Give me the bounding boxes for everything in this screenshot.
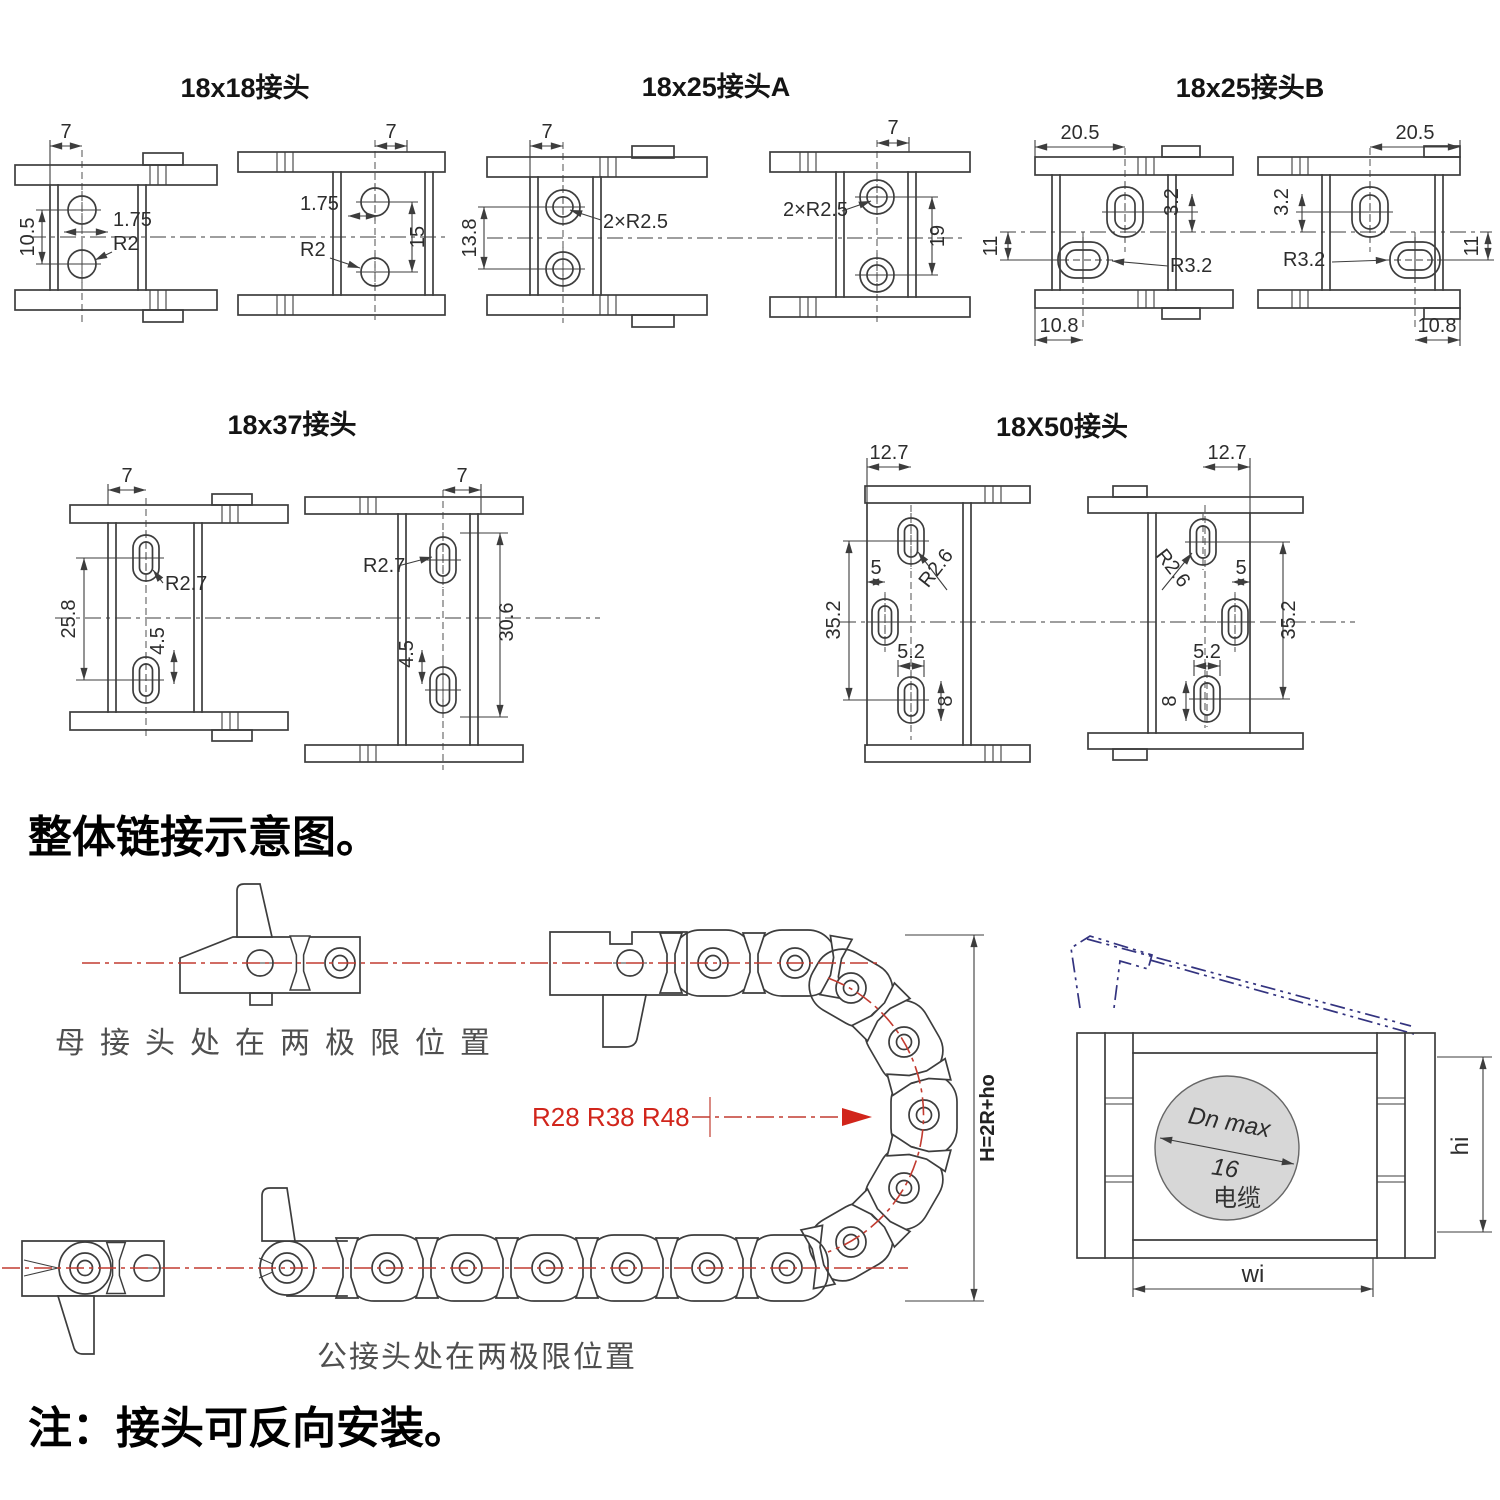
dim-width-7: 7 bbox=[877, 117, 909, 152]
inner-width-label: wi bbox=[1241, 1261, 1265, 1288]
chain-top-run bbox=[550, 930, 852, 1047]
inner-width-dimension: wi bbox=[1133, 1258, 1373, 1297]
view-left: 7 25.8 R2.7 4.5 bbox=[58, 465, 288, 741]
cable-diameter-value: 16 bbox=[1210, 1153, 1241, 1184]
dim-label: 5 bbox=[1235, 557, 1246, 579]
dim-radius-2xR2.5: 2×R2.5 bbox=[570, 210, 668, 233]
dim-radius-R2.7: R2.7 bbox=[363, 555, 432, 577]
dim-offset-11: 11 bbox=[1437, 232, 1494, 260]
dim-label: 7 bbox=[385, 121, 396, 143]
dim-width-7: 7 bbox=[443, 465, 481, 514]
dim-offset-11: 11 bbox=[980, 232, 1062, 260]
view-left: 20.5 3.2 11 R3.2 10.8 bbox=[980, 122, 1233, 346]
dim-label: R3.2 bbox=[1283, 249, 1325, 271]
dim-label: 10.8 bbox=[1418, 315, 1457, 337]
mount-slot bbox=[1189, 671, 1225, 727]
dim-pitch-19: 19 bbox=[893, 197, 949, 275]
mount-hole bbox=[63, 191, 101, 229]
dim-pitch-25.8: 25.8 bbox=[58, 558, 128, 680]
inner-height-dimension: hi bbox=[1437, 1057, 1492, 1232]
dim-label: 5.2 bbox=[1193, 641, 1221, 663]
dim-label: 10.8 bbox=[1040, 315, 1079, 337]
mount-slot bbox=[1102, 182, 1148, 242]
view-right: 12.7 R2.6 5 35.2 5.2 8 bbox=[1088, 442, 1303, 760]
panel-18x25-a: 18x25接头A 7 13.8 2× bbox=[459, 72, 970, 327]
dim-label: R3.2 bbox=[1170, 255, 1212, 277]
dim-radius-R2: R2 bbox=[300, 239, 360, 268]
dim-label: 7 bbox=[541, 121, 552, 143]
technical-drawing: 18x18接头 7 10.5 1.7 bbox=[0, 0, 1500, 1500]
view-right: 7 1.75 R2 15 bbox=[238, 121, 445, 320]
view-left: 12.7 35.2 5 R2.6 5.2 8 bbox=[823, 442, 1030, 762]
dim-label: R2.7 bbox=[165, 573, 207, 595]
dim-label: 35.2 bbox=[823, 601, 845, 640]
panel-18x25-b: 18x25接头B 20.5 3.2 bbox=[980, 73, 1494, 346]
view-right: 20.5 3.2 11 R3.2 10.8 bbox=[1258, 122, 1494, 346]
panel-18x37: 18x37接头 7 25.8 R2. bbox=[55, 410, 600, 770]
dim-label: 12.7 bbox=[870, 442, 909, 464]
dim-offset-10.8: 10.8 bbox=[1035, 308, 1083, 346]
dim-label: 1.75 bbox=[113, 209, 152, 231]
panel-title: 18x18接头 bbox=[180, 73, 309, 103]
dim-label: 7 bbox=[456, 465, 467, 487]
dim-label: 8 bbox=[935, 695, 957, 706]
mount-slot bbox=[1185, 514, 1221, 570]
dim-width-20.5: 20.5 bbox=[1370, 122, 1460, 157]
view-right: 7 2×R2.5 19 bbox=[770, 117, 970, 322]
mount-hole bbox=[855, 175, 899, 219]
mount-hole bbox=[63, 245, 101, 283]
dim-label: 7 bbox=[60, 121, 71, 143]
dim-width-7: 7 bbox=[375, 121, 407, 152]
dim-label: 5.2 bbox=[897, 641, 925, 663]
bend-radius-label: R28 R38 R48 bbox=[532, 1102, 690, 1132]
dim-label: 13.8 bbox=[459, 219, 481, 258]
dim-label: 3.2 bbox=[1161, 188, 1183, 216]
dim-label: 7 bbox=[121, 465, 132, 487]
dim-label: 12.7 bbox=[1208, 442, 1247, 464]
dim-radius-R2.6: R2.6 bbox=[1151, 545, 1194, 592]
female-connector-isolated bbox=[180, 884, 360, 1005]
dim-radius-R2.7: R2.7 bbox=[153, 570, 207, 595]
dim-label: 2×R2.5 bbox=[603, 211, 668, 233]
mount-hole bbox=[356, 253, 394, 291]
panel-18x18: 18x18接头 7 10.5 1.7 bbox=[15, 73, 448, 325]
section-heading: 整体链接示意图。 bbox=[28, 813, 380, 862]
dim-label: 11 bbox=[1461, 236, 1483, 257]
dim-label: 2×R2.5 bbox=[783, 199, 848, 221]
cross-section: Dn max 16 电缆 hi wi bbox=[1071, 936, 1492, 1297]
dim-width-7: 7 bbox=[108, 465, 146, 505]
view-left: 7 10.5 1.75 R2 bbox=[15, 121, 217, 325]
dim-offset-4.5: 4.5 bbox=[147, 627, 174, 684]
mount-hole bbox=[541, 185, 585, 229]
dim-offset-5: 5 bbox=[867, 557, 885, 582]
dim-width-12.7: 12.7 bbox=[1203, 442, 1250, 513]
mount-slot bbox=[1347, 182, 1393, 242]
dim-width-12.7: 12.7 bbox=[867, 442, 911, 503]
dim-label: 4.5 bbox=[396, 640, 418, 668]
dim-radius-R3.2: R3.2 bbox=[1283, 249, 1388, 271]
panel-title: 18x25接头B bbox=[1176, 73, 1325, 103]
dim-label: 20.5 bbox=[1061, 122, 1100, 144]
cable-text: 电缆 bbox=[1213, 1185, 1261, 1212]
dim-width-7: 7 bbox=[50, 121, 82, 185]
view-left: 7 13.8 2×R2.5 bbox=[459, 121, 707, 327]
panel-title: 18x37接头 bbox=[227, 410, 356, 440]
dim-label: 10.5 bbox=[17, 218, 39, 257]
dim-offset-4.5: 4.5 bbox=[396, 640, 422, 684]
panel-title: 18x25接头A bbox=[642, 72, 791, 102]
dim-label: 7 bbox=[887, 117, 898, 139]
dim-width-5.2: 5.2 bbox=[1193, 641, 1221, 676]
dim-offset-1.75: 1.75 bbox=[64, 209, 152, 232]
mount-slot bbox=[893, 672, 929, 728]
dim-label: R2 bbox=[300, 239, 326, 261]
male-position-label: 公接头处在两极限位置 bbox=[317, 1341, 637, 1374]
dim-label: 25.8 bbox=[58, 600, 80, 639]
dim-offset-5: 5 bbox=[1232, 557, 1250, 582]
dim-radius-R2.6: R2.6 bbox=[915, 545, 958, 592]
dim-label: 19 bbox=[927, 225, 949, 247]
chain-bottom-run bbox=[259, 1188, 828, 1301]
dim-label: 20.5 bbox=[1396, 122, 1435, 144]
note-text: 注：接头可反向安装。 bbox=[28, 1404, 468, 1453]
female-position-label: 母接头处在两极限位置 bbox=[55, 1027, 505, 1060]
dim-label: R2.6 bbox=[1151, 545, 1194, 592]
panel-18x50: 18X50接头 12.7 35.2 bbox=[823, 412, 1355, 762]
dim-height-8: 8 bbox=[1159, 681, 1186, 721]
bend-radius-annotation: R28 R38 R48 bbox=[532, 1097, 872, 1137]
inner-height-label: hi bbox=[1447, 1137, 1474, 1156]
height-formula-label: H=2R+ho bbox=[977, 1074, 999, 1162]
mount-hole bbox=[541, 247, 585, 291]
dim-radius-R3.2: R3.2 bbox=[1112, 255, 1212, 277]
mount-slot bbox=[128, 652, 164, 708]
arrowhead bbox=[842, 1108, 872, 1126]
dim-width-20.5: 20.5 bbox=[1035, 122, 1125, 157]
dim-label: R2 bbox=[113, 233, 139, 255]
dim-radius-2xR2.5: 2×R2.5 bbox=[783, 199, 871, 221]
dim-offset-3.2: 3.2 bbox=[1271, 188, 1348, 232]
dim-height-8: 8 bbox=[935, 681, 957, 721]
dim-pitch-30.6: 30.6 bbox=[460, 533, 518, 717]
dim-label: 35.2 bbox=[1278, 601, 1300, 640]
mount-hole bbox=[356, 183, 394, 221]
dim-label: 30.6 bbox=[496, 603, 518, 642]
dim-label: 5 bbox=[870, 557, 881, 579]
engineering-drawing-page: 18x18接头 7 10.5 1.7 bbox=[0, 0, 1500, 1500]
mount-slot bbox=[1217, 594, 1253, 650]
male-connector-inchain bbox=[259, 1188, 347, 1296]
dim-label: 3.2 bbox=[1271, 188, 1293, 216]
dim-label: 1.75 bbox=[300, 193, 339, 215]
mount-hole bbox=[855, 253, 899, 297]
panel-title: 18X50接头 bbox=[996, 412, 1128, 442]
male-connector-isolated bbox=[22, 1241, 164, 1354]
dim-offset-10.8: 10.8 bbox=[1415, 308, 1460, 346]
dim-offset-3.2: 3.2 bbox=[1148, 188, 1198, 232]
dim-label: 8 bbox=[1159, 695, 1181, 706]
dim-label: 4.5 bbox=[147, 627, 169, 655]
dim-label: 11 bbox=[980, 236, 1002, 257]
dim-width-7: 7 bbox=[530, 121, 563, 177]
dim-pitch-35.2: 35.2 bbox=[1218, 542, 1300, 699]
assembly-diagram: R28 R38 R48 H=2R+ho 母接头处在两极限位置 公接头处在两极限位… bbox=[2, 884, 999, 1374]
mount-slot bbox=[1385, 237, 1445, 283]
dim-label: R2.6 bbox=[915, 545, 958, 592]
dim-label: 15 bbox=[407, 226, 429, 248]
open-cover-phantom bbox=[1071, 936, 1414, 1034]
